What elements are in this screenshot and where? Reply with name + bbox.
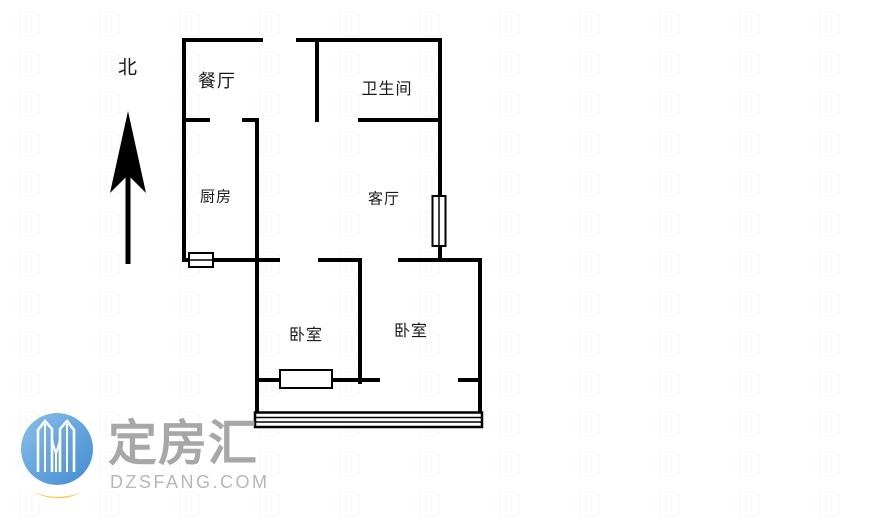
brand-logo-icon — [8, 408, 108, 511]
room-label-kitchen: 厨房 — [200, 186, 232, 207]
floorplan-canvas: 北 餐厅 卫生间 厨房 客厅 卧室 卧室 — [0, 0, 882, 519]
living-room-window — [433, 196, 446, 246]
brand-domain: DZSFANG.COM — [110, 473, 270, 491]
brand-watermark: 定房汇 DZSFANG.COM — [0, 400, 420, 519]
room-label-bathroom: 卫生间 — [361, 75, 412, 99]
room-label-bedroom-right: 卧室 — [394, 317, 428, 341]
room-label-dining: 餐厅 — [198, 67, 236, 93]
yellow-swoosh — [21, 483, 90, 499]
kitchen-window — [189, 253, 213, 267]
bedroom-window — [280, 370, 332, 388]
north-label: 北 — [118, 53, 138, 80]
north-arrow-icon — [110, 111, 146, 264]
room-label-bedroom-left: 卧室 — [289, 321, 323, 345]
brand-name: 定房汇 — [108, 419, 258, 468]
room-label-living-room: 客厅 — [368, 188, 400, 209]
